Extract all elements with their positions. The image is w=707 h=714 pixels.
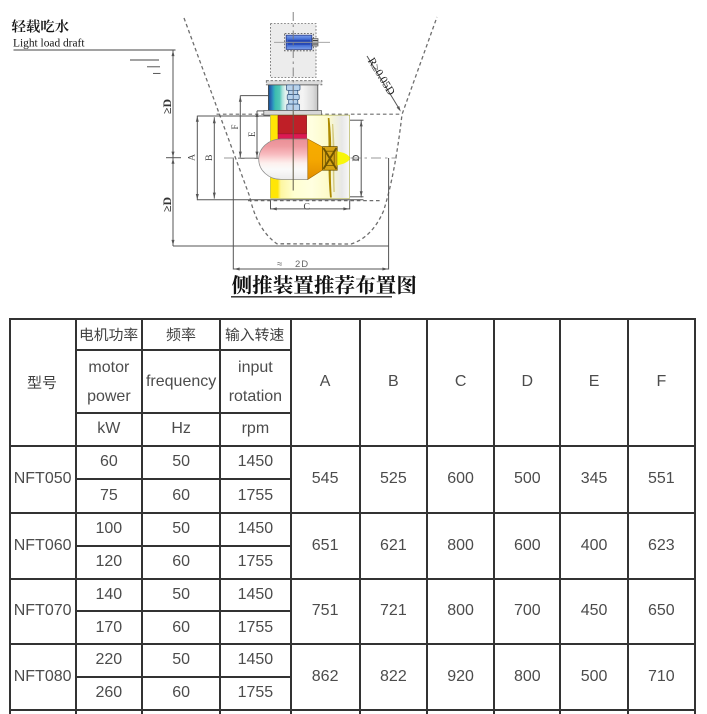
svg-text:≈: ≈	[277, 259, 283, 270]
svg-text:D: D	[352, 155, 362, 162]
svg-text:C: C	[304, 202, 310, 213]
svg-text:R≥0.05D: R≥0.05D	[365, 56, 397, 98]
svg-text:B: B	[204, 154, 215, 161]
svg-text:A: A	[187, 154, 198, 161]
svg-text:≥D: ≥D	[160, 99, 174, 114]
svg-text:F: F	[230, 124, 240, 129]
svg-text:Light load draft: Light load draft	[13, 38, 85, 50]
svg-text:≥D: ≥D	[160, 197, 174, 212]
svg-text:2D: 2D	[295, 259, 309, 270]
svg-text:E: E	[247, 131, 257, 137]
